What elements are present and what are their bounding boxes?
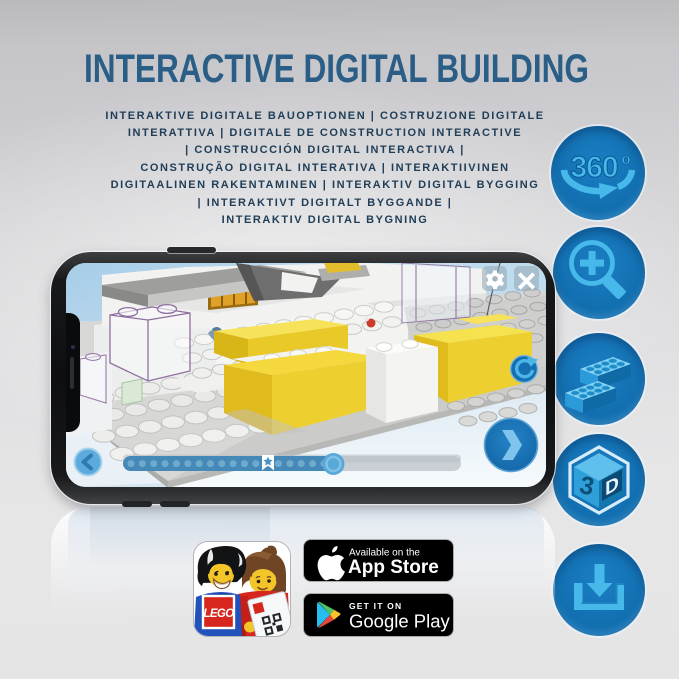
svg-text:LEGO: LEGO [203, 608, 234, 620]
svg-text:360: 360 [570, 151, 617, 184]
svg-text:GET IT ON: GET IT ON [349, 601, 402, 611]
svg-text:App Store: App Store [348, 557, 439, 578]
svg-text:o: o [621, 151, 630, 168]
svg-text:Google Play: Google Play [349, 611, 451, 632]
